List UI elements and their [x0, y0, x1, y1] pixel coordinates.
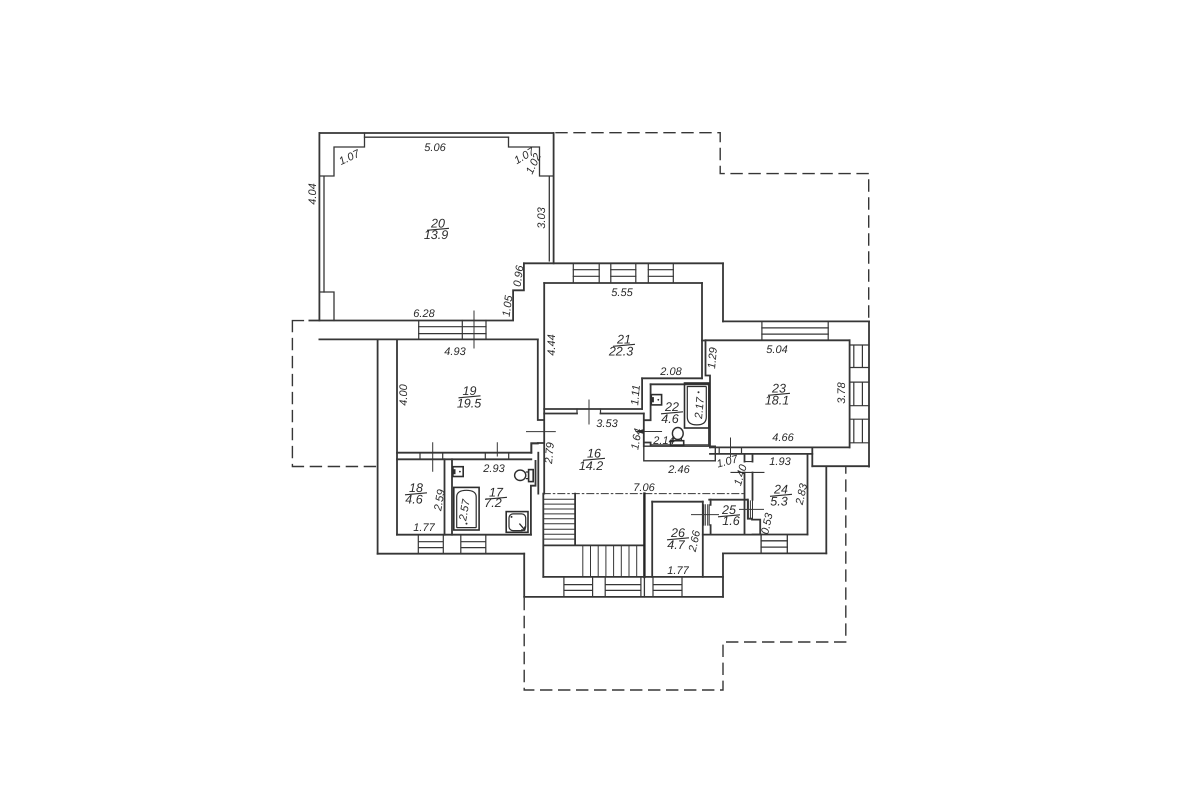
- svg-text:4.44: 4.44: [546, 334, 558, 355]
- svg-text:6.28: 6.28: [413, 308, 435, 320]
- svg-text:1.07: 1.07: [337, 148, 362, 168]
- svg-text:1.93: 1.93: [769, 456, 791, 468]
- svg-text:2.17: 2.17: [693, 396, 707, 420]
- svg-text:4.00: 4.00: [398, 383, 410, 405]
- svg-text:3.78: 3.78: [836, 381, 848, 403]
- svg-text:1.77: 1.77: [667, 565, 689, 577]
- svg-text:4.66: 4.66: [772, 432, 794, 444]
- svg-text:3.53: 3.53: [596, 418, 618, 430]
- svg-text:5.04: 5.04: [766, 344, 787, 356]
- svg-text:14.2: 14.2: [579, 459, 603, 473]
- svg-text:2.14: 2.14: [652, 435, 674, 447]
- svg-text:22.3: 22.3: [608, 345, 633, 359]
- svg-text:2.08: 2.08: [659, 366, 682, 378]
- svg-text:13.9: 13.9: [424, 228, 448, 242]
- svg-text:2.57: 2.57: [457, 498, 473, 523]
- svg-text:1.40: 1.40: [732, 462, 750, 487]
- svg-text:4.93: 4.93: [444, 346, 466, 358]
- svg-text:1.64: 1.64: [629, 428, 645, 451]
- svg-text:4.7: 4.7: [667, 538, 685, 552]
- svg-text:1.29: 1.29: [706, 347, 720, 369]
- svg-text:1.11: 1.11: [629, 384, 643, 406]
- svg-text:2.66: 2.66: [687, 529, 704, 554]
- svg-text:4.6: 4.6: [405, 493, 422, 507]
- svg-text:5.06: 5.06: [424, 142, 446, 154]
- svg-text:0.53: 0.53: [759, 511, 775, 535]
- svg-text:1.77: 1.77: [413, 522, 435, 534]
- svg-text:2.46: 2.46: [667, 464, 690, 476]
- svg-text:3.03: 3.03: [536, 206, 548, 228]
- svg-text:5.3: 5.3: [770, 495, 787, 509]
- svg-text:19.5: 19.5: [457, 397, 481, 411]
- svg-text:4.04: 4.04: [307, 183, 319, 204]
- svg-text:2.79: 2.79: [543, 442, 557, 465]
- svg-text:7.2: 7.2: [484, 496, 501, 510]
- svg-text:1.6: 1.6: [722, 514, 739, 528]
- svg-text:7.06: 7.06: [633, 482, 655, 494]
- svg-text:18.1: 18.1: [765, 394, 789, 408]
- svg-text:5.55: 5.55: [611, 287, 633, 299]
- svg-text:2.93: 2.93: [482, 463, 505, 475]
- svg-text:4.6: 4.6: [661, 412, 678, 426]
